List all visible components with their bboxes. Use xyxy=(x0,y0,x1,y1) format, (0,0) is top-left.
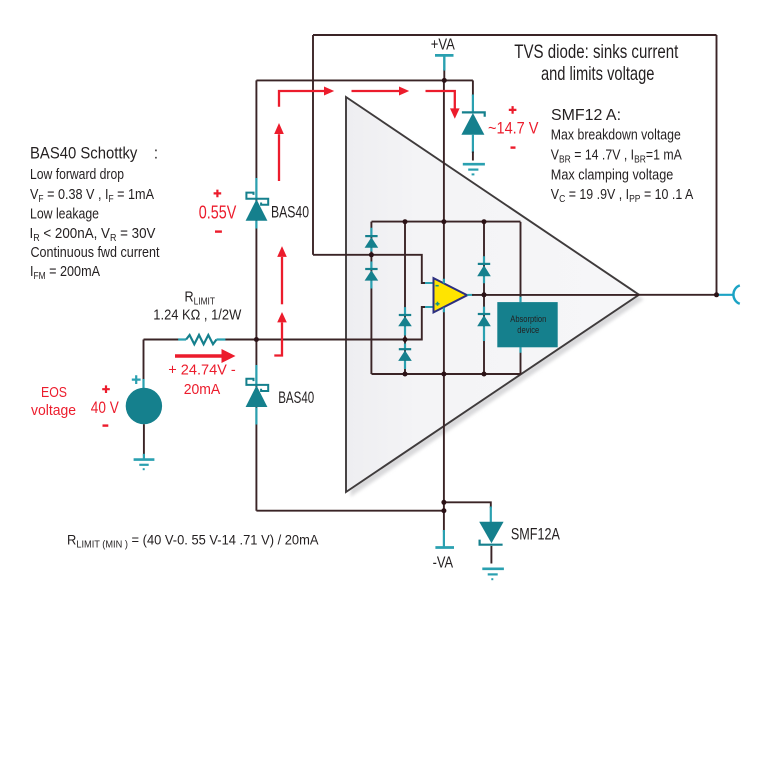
svg-text:~14.7 V: ~14.7 V xyxy=(488,119,539,138)
svg-text:BAS40: BAS40 xyxy=(278,388,314,407)
svg-text:SMF12A: SMF12A xyxy=(511,525,560,544)
svg-text:Continuous fwd current: Continuous fwd current xyxy=(31,244,161,261)
svg-text:Max clamping voltage: Max clamping voltage xyxy=(551,167,674,183)
svg-text:Absorption: Absorption xyxy=(510,314,546,325)
svg-text:20mA: 20mA xyxy=(184,381,221,398)
svg-text:RLIMIT: RLIMIT xyxy=(185,289,216,308)
svg-text:voltage: voltage xyxy=(31,402,76,419)
svg-text:BAS40: BAS40 xyxy=(271,202,309,221)
svg-text:1.24 KΩ , 1/2W: 1.24 KΩ , 1/2W xyxy=(153,306,242,323)
svg-text:+VA: +VA xyxy=(431,37,455,54)
svg-text:TVS diode: sinks current: TVS diode: sinks current xyxy=(514,41,678,63)
svg-text:Max breakdown voltage: Max breakdown voltage xyxy=(551,128,681,144)
svg-text:VF = 0.38 V , IF = 1mA: VF = 0.38 V , IF = 1mA xyxy=(30,186,154,205)
svg-text:40 V: 40 V xyxy=(91,398,120,417)
svg-text:+ 24.74V -: + 24.74V - xyxy=(168,362,236,379)
svg-text:VC = 19 .9V , IPP = 10 .1 A: VC = 19 .9V , IPP = 10 .1 A xyxy=(551,187,694,205)
svg-text:0.55V: 0.55V xyxy=(199,203,237,223)
svg-text:-VA: -VA xyxy=(433,555,454,572)
svg-text:device: device xyxy=(517,325,539,336)
svg-text:VBR = 14 .7V , IBR=1 mA: VBR = 14 .7V , IBR=1 mA xyxy=(551,148,682,166)
svg-text:SMF12 A:: SMF12 A: xyxy=(551,107,621,124)
svg-text:IR < 200nA, VR = 30V: IR < 200nA, VR = 30V xyxy=(30,225,156,244)
svg-text:IFM = 200mA: IFM = 200mA xyxy=(30,263,100,282)
svg-text:and limits voltage: and limits voltage xyxy=(541,63,655,85)
svg-text:RLIMIT (MIN ) = (40 V-0. 55 V: RLIMIT (MIN ) = (40 V-0. 55 V-14 .71 V) … xyxy=(67,531,319,550)
svg-text:EOS: EOS xyxy=(41,384,67,401)
svg-text:BAS40 Schottky :: BAS40 Schottky : xyxy=(30,143,158,162)
svg-text:Low leakage: Low leakage xyxy=(30,205,99,222)
svg-text:Low forward drop: Low forward drop xyxy=(30,166,124,183)
